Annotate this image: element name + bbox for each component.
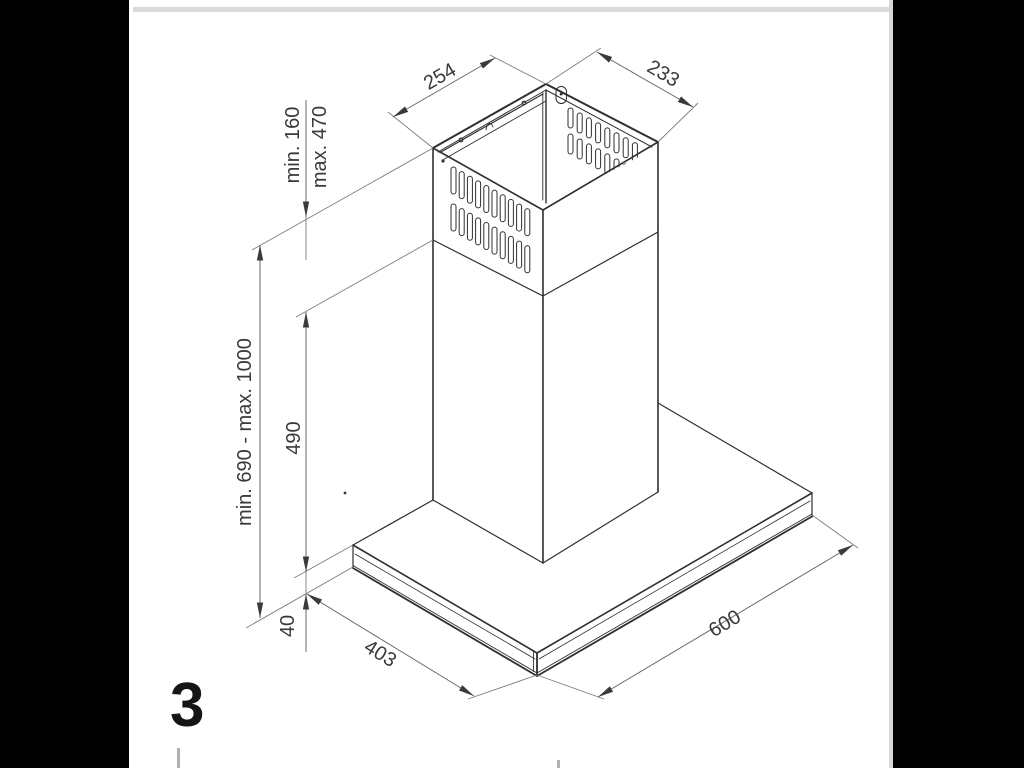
dimension-label-canopy-width: 600 [705,606,745,642]
dimension-label-lower-flue-height: 490 [283,421,305,454]
right-letterbox [893,0,1024,768]
canopy-top-right-back-edge [658,403,812,493]
flue-lower-section [344,492,658,563]
dimension-label-canopy-thickness: 40 [277,615,299,637]
flue-top-reference-line [252,148,433,250]
flue-telescopic-seam [433,232,658,296]
dimension-label-canopy-depth: 403 [360,636,400,672]
dimension-label-top-width: 233 [643,56,683,92]
dimension-flue-extension: min. 160 max. 470 [252,100,433,260]
dimension-label-flue-min: min. 160 [282,107,304,184]
figure-number: 3 [170,671,204,740]
dimension-label-total-height: min. 690 - max. 1000 [234,338,256,526]
manual-page-screenshot: 254 233 min. 160 max. 470 min. 690 - max… [0,0,1024,768]
dimension-label-top-depth: 254 [420,59,460,95]
dimension-total-height: min. 690 - max. 1000 [234,245,260,618]
hood-technical-drawing: 254 233 min. 160 max. 470 min. 690 - max… [0,0,1024,768]
dimension-403: 403 [307,594,537,699]
canopy-top-front-edges [353,493,812,653]
dimension-40: 40 [246,567,353,652]
page-top-divider [133,7,889,12]
screw-hole [441,159,444,162]
speck [344,492,347,495]
dimension-label-flue-max: max. 470 [309,106,331,188]
canopy-trim-right [539,501,810,659]
dimension-490: 490 [283,240,433,578]
flue-bottom-edges [433,492,658,563]
flue-upper-section [433,84,658,563]
dimension-600: 600 [537,515,858,699]
mounting-bracket [440,94,545,160]
next-page-table-tick-right [557,760,560,768]
next-page-table-tick-left [177,748,180,768]
flue-top-rim-inner [438,90,652,152]
page-right-gutter [889,0,893,768]
canopy-base [353,403,812,676]
vent-slots-left-face [451,167,530,273]
canopy-top-left-back-edge [353,500,433,545]
canopy-bottom-reference-line [246,567,353,628]
left-letterbox [0,0,129,768]
